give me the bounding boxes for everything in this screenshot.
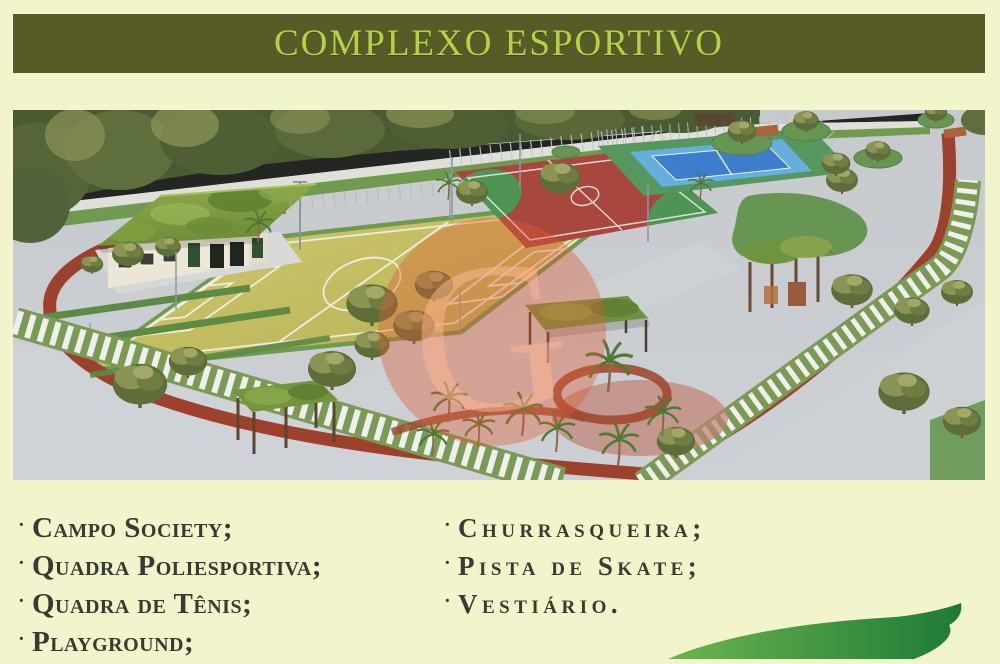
amenity-label: Quadra de Tênis;	[32, 588, 252, 620]
page-title: COMPLEXO ESPORTIVO	[274, 22, 724, 65]
title-banner: COMPLEXO ESPORTIVO	[13, 14, 985, 73]
bullet-icon: ·	[18, 506, 32, 544]
bullet-icon: ·	[18, 544, 32, 582]
amenity-label: Vestiário.	[458, 589, 622, 619]
amenity-label: Pista de Skate;	[458, 551, 701, 581]
amenity-label: Campo Society;	[32, 512, 233, 544]
leaf-icon	[668, 603, 968, 659]
list-item: ·Campo Society;	[18, 506, 322, 544]
amenity-label: Playground;	[32, 626, 194, 658]
list-item: ·Vestiário.	[444, 582, 706, 620]
aerial-render: G	[13, 110, 985, 480]
bullet-icon: ·	[18, 620, 32, 658]
sports-complex-illustration: G	[13, 110, 985, 480]
page: { "page": { "background_color": "#f2f5cb…	[0, 0, 1000, 659]
amenity-label: Churrasqueira;	[458, 513, 706, 543]
amenities-list-right: ·Churrasqueira; ·Pista de Skate; ·Vestiá…	[444, 506, 706, 620]
bullet-icon: ·	[18, 582, 32, 620]
list-item: ·Playground;	[18, 620, 322, 658]
list-item: ·Quadra Poliesportiva;	[18, 544, 322, 582]
list-item: ·Pista de Skate;	[444, 544, 706, 582]
amenities-list-left: ·Campo Society; ·Quadra Poliesportiva; ·…	[18, 506, 322, 658]
list-item: ·Quadra de Tênis;	[18, 582, 322, 620]
leaf-decoration	[668, 603, 968, 659]
bullet-icon: ·	[444, 544, 458, 582]
list-item: ·Churrasqueira;	[444, 506, 706, 544]
bullet-icon: ·	[444, 582, 458, 620]
watermark-letter: G	[401, 211, 580, 465]
bullet-icon: ·	[444, 506, 458, 544]
amenity-label: Quadra Poliesportiva;	[32, 550, 322, 582]
